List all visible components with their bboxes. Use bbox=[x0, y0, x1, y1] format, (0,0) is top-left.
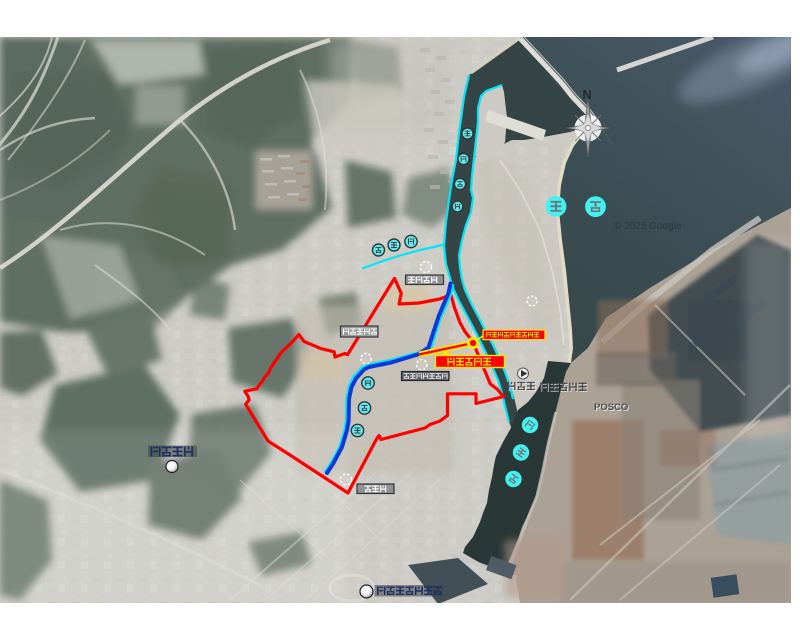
svg-text:© 2025 Google: © 2025 Google bbox=[614, 221, 682, 232]
svg-text:POSCO: POSCO bbox=[594, 402, 628, 413]
svg-text:N: N bbox=[583, 88, 592, 102]
